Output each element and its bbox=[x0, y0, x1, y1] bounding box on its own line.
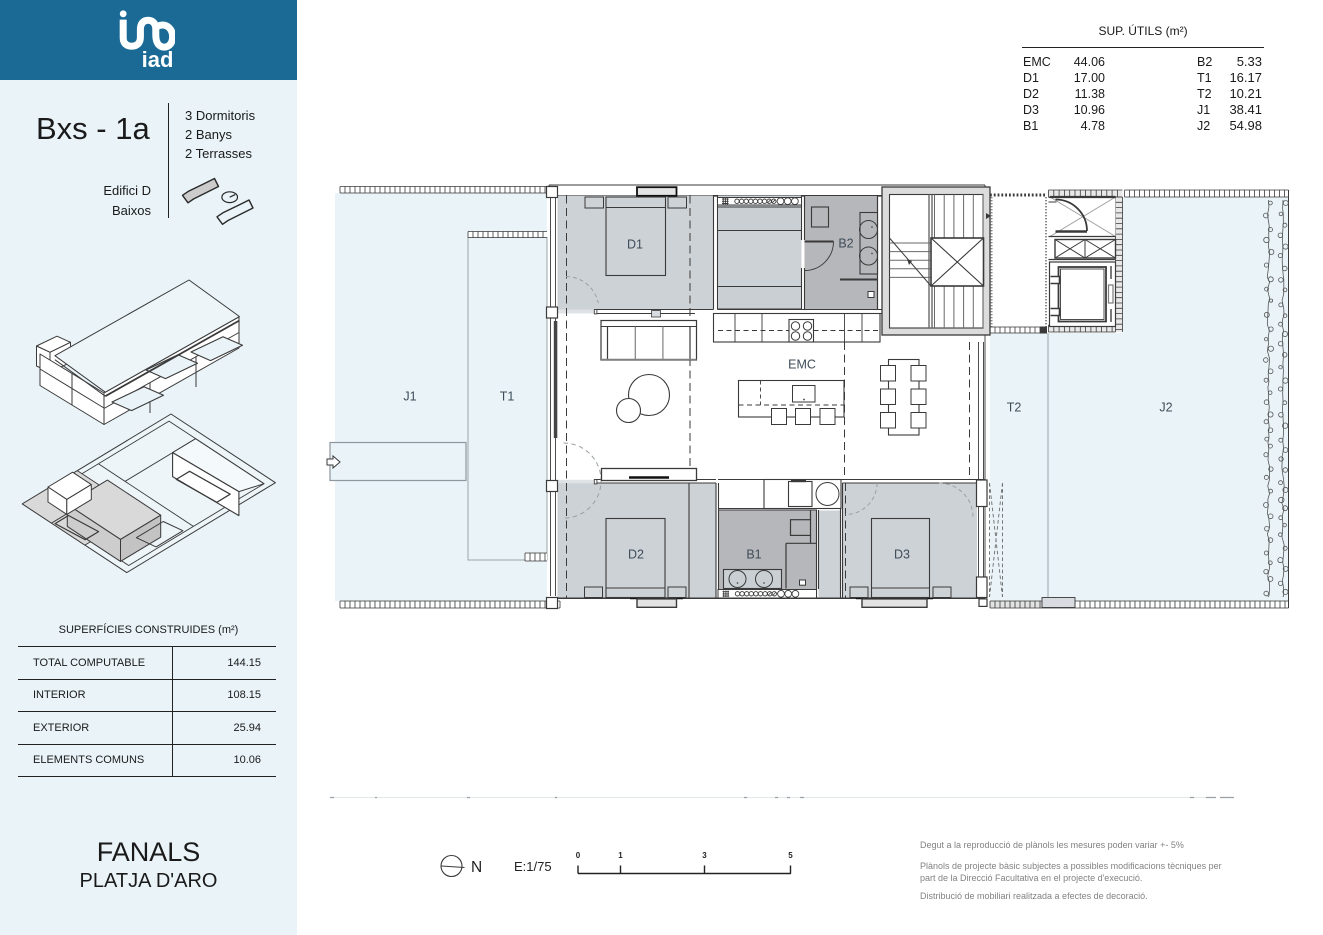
svg-text:3: 3 bbox=[702, 851, 707, 860]
svg-text:T2: T2 bbox=[1007, 401, 1022, 415]
svg-text:D2: D2 bbox=[628, 548, 644, 562]
svg-text:D3: D3 bbox=[894, 548, 910, 562]
svg-text:1: 1 bbox=[618, 851, 623, 860]
svg-text:J2: J2 bbox=[1159, 401, 1172, 415]
svg-text:5: 5 bbox=[788, 851, 793, 860]
svg-text:J1: J1 bbox=[403, 390, 416, 404]
svg-text:B1: B1 bbox=[746, 548, 761, 562]
svg-text:0: 0 bbox=[576, 851, 581, 860]
svg-text:B2: B2 bbox=[838, 237, 853, 251]
svg-text:EMC: EMC bbox=[788, 358, 816, 372]
svg-text:D1: D1 bbox=[627, 238, 643, 252]
svg-text:T1: T1 bbox=[500, 390, 515, 404]
svg-text:E:1/75: E:1/75 bbox=[514, 859, 552, 874]
svg-text:N: N bbox=[471, 859, 482, 876]
